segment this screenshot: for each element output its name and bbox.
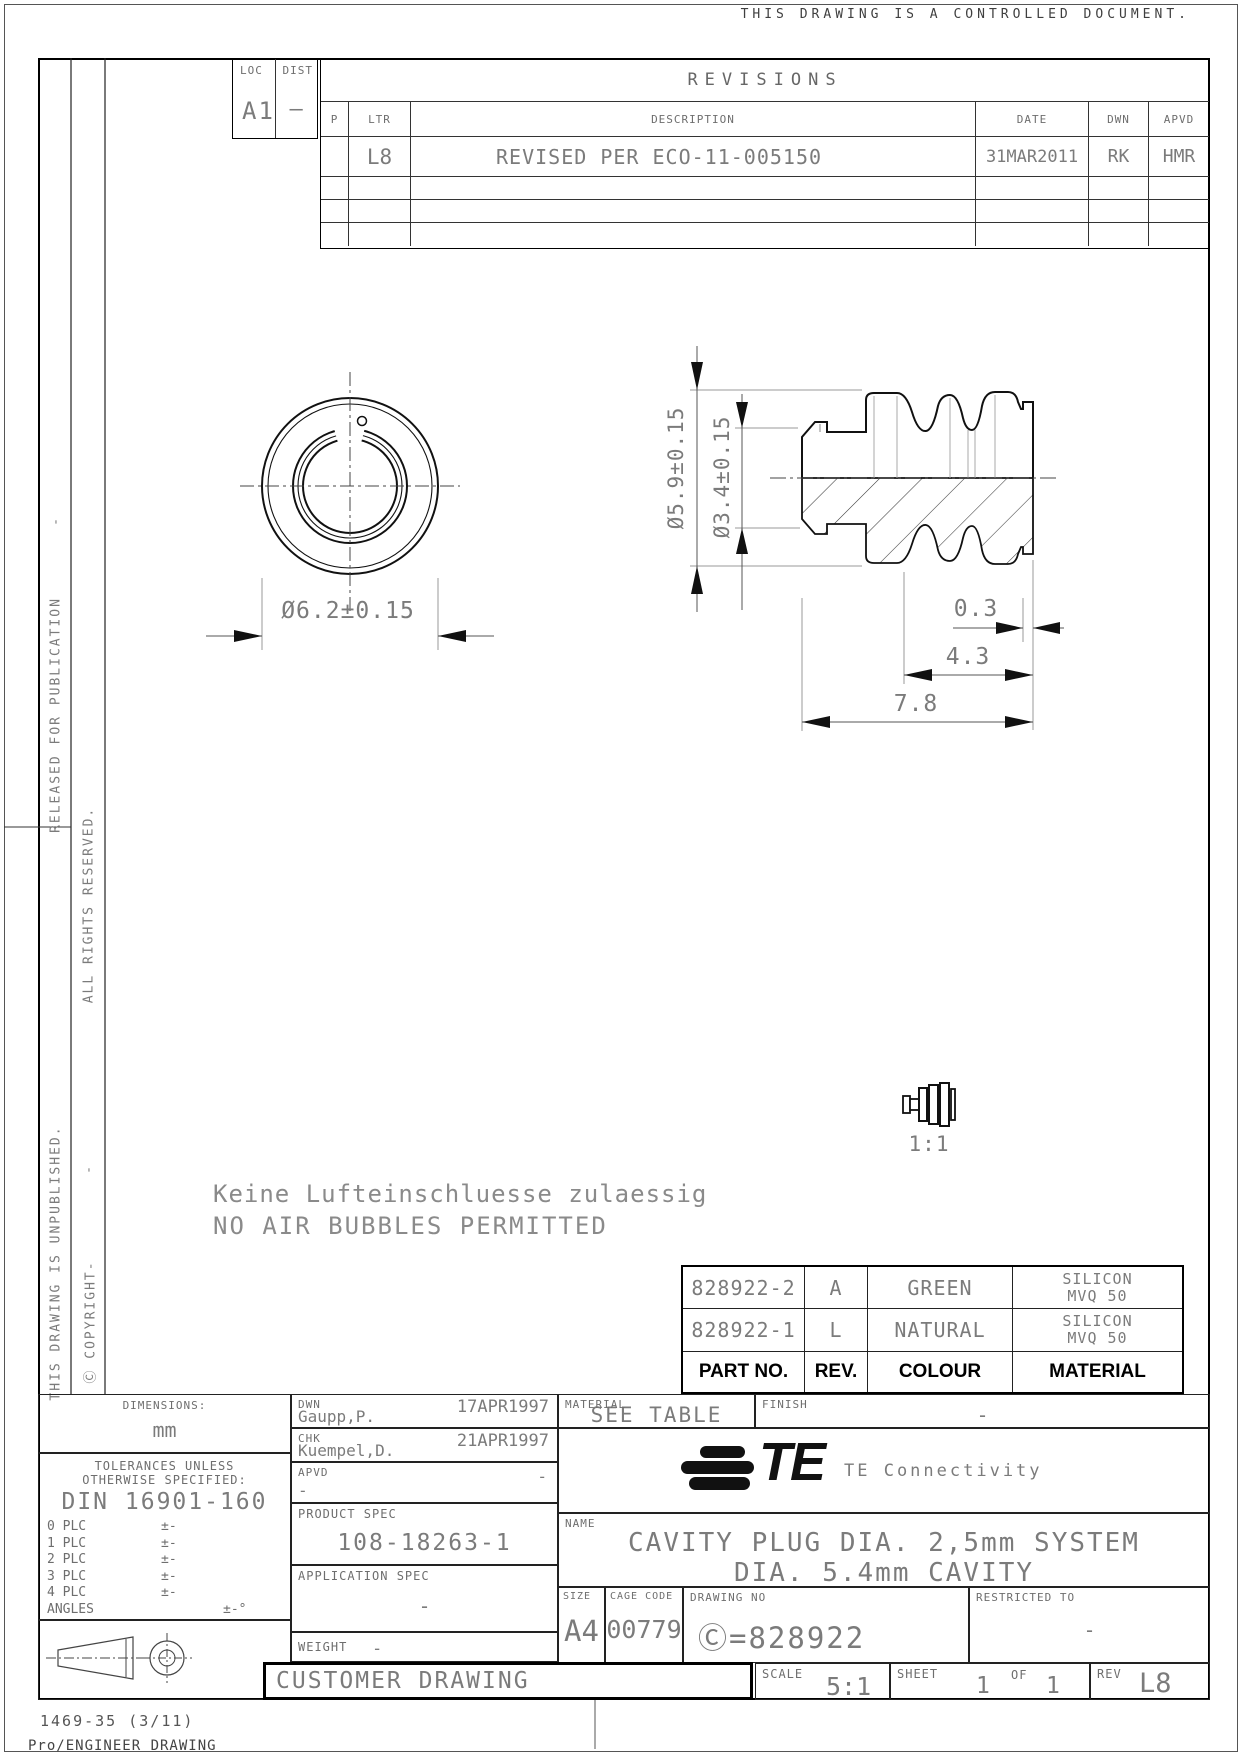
rev-header: REV. [805,1352,868,1392]
te-logo-wordmark: TE [759,1431,824,1493]
rev-col-date: DATE [976,102,1089,137]
controlled-document-note: THIS DRAWING IS A CONTROLLED DOCUMENT. [741,7,1190,22]
dwn-cell: DWN 17APR1997 Gaupp,P. [291,1394,558,1428]
scale-1-1-label: 1:1 [909,1132,950,1156]
dist-value: – [290,97,303,122]
size-label: SIZE [563,1591,591,1602]
released-for-publication-note: RELEASED FOR PUBLICATION [49,597,64,833]
colour-cell: GREEN [868,1267,1013,1309]
dist-cell: DIST – [276,59,318,138]
material-cell: MATERIAL SEE TABLE [558,1394,755,1428]
cage-code-value: 00779 [606,1615,682,1644]
apvd-label: APVD [298,1466,329,1479]
loc-label: LOC [240,64,263,77]
apvd-name: - [298,1481,308,1500]
drawing-title-line2: DIA. 5.4mm CAVITY [559,1558,1209,1588]
dim-side-outer-diameter: Ø5.9±0.15 [664,407,688,530]
weight-cell: WEIGHT - [291,1632,558,1662]
projection-symbol-cell [38,1620,291,1700]
dim-front-diameter: Ø6.2±0.15 [281,598,415,624]
part-table: 828922-2 A GREEN SILICON MVQ 50 828922-1… [681,1265,1184,1394]
application-spec-value: - [292,1594,557,1618]
material-label: MATERIAL [565,1398,626,1411]
released-dash: - [49,518,64,526]
part-no-cell: 828922-2 [683,1267,805,1309]
drawing-no-value: Ⓒ=828922 [698,1615,968,1657]
cage-code-label: CAGE CODE [610,1591,673,1602]
rev-cell: L [805,1309,868,1352]
dim-total-length: 7.8 [894,691,939,717]
footer-note: Pro/ENGINEER DRAWING [28,1738,217,1754]
rev-col-description: DESCRIPTION [411,102,976,137]
revisions-table: REVISIONS P LTR DESCRIPTION DATE DWN APV… [320,58,1210,249]
tolerances-standard: DIN 16901-160 [39,1489,290,1515]
rev-label: REV [1097,1667,1122,1681]
colour-header: COLOUR [868,1352,1013,1392]
dim-lip-width: 0.3 [954,596,999,622]
unpublished-note: THIS DRAWING IS UNPUBLISHED. [49,1125,64,1400]
application-spec-label: APPLICATION SPEC [298,1569,430,1583]
revision-row: L8 REVISED PER ECO-11-005150 31MAR2011 R… [321,137,1209,177]
plc-row: 4 PLC ±- [47,1585,290,1602]
rights-dash: - [82,1166,97,1174]
chk-name: Kuempel,D. [298,1441,394,1460]
product-spec-cell: PRODUCT SPEC 108-18263-1 [291,1503,558,1565]
rev-apvd: HMR [1149,137,1209,177]
form-number: 1469-35 (3/11) [40,1712,194,1730]
dwn-date: 17APR1997 [457,1397,549,1417]
chk-date: 21APR1997 [457,1431,549,1451]
finish-cell: FINISH - [755,1394,1210,1428]
dimensions-label: DIMENSIONS: [39,1395,290,1412]
rev-col-dwn: DWN [1089,102,1149,137]
restricted-to-value: - [970,1618,1209,1642]
rev-dwn: RK [1089,137,1149,177]
rev-value: L8 [1139,1668,1172,1699]
sheet-label: SHEET [897,1667,938,1681]
revision-empty-row [321,177,1209,200]
engineering-drawing-page: THIS DRAWING IS A CONTROLLED DOCUMENT. R… [0,0,1242,1756]
rev-cell: REV L8 [1090,1663,1210,1700]
application-spec-cell: APPLICATION SPEC - [291,1565,558,1632]
scale-cell: SCALE 5:1 [755,1663,890,1700]
plc-row: 3 PLC ±- [47,1569,290,1586]
part-no-cell: 828922-1 [683,1309,805,1352]
sheet-of-label: OF [1011,1668,1027,1682]
material-cell: SILICON MVQ 50 [1013,1267,1182,1309]
weight-value: - [372,1639,382,1659]
finish-label: FINISH [762,1398,808,1411]
sheet-cell: SHEET 1 OF 1 [890,1663,1090,1700]
apvd-date: - [537,1467,547,1486]
size-value: A4 [559,1614,604,1648]
note-german: Keine Lufteinschluesse zulaessig [213,1180,707,1208]
apvd-cell: APVD - - [291,1462,558,1503]
size-cell: SIZE A4 [558,1587,605,1663]
scale-value: 5:1 [826,1672,871,1701]
dim-side-inner-diameter: Ø3.4±0.15 [710,416,734,539]
finish-value: - [756,1403,1209,1427]
dimensions-cell: DIMENSIONS: mm [38,1394,291,1453]
cage-code-cell: CAGE CODE 00779 [605,1587,683,1663]
rev-p [321,137,349,177]
loc-value: A1 [242,97,275,125]
tolerances-cell: TOLERANCES UNLESS OTHERWISE SPECIFIED: D… [38,1453,291,1620]
revisions-header-row: P LTR DESCRIPTION DATE DWN APVD [321,102,1209,137]
note-english: NO AIR BUBBLES PERMITTED [213,1212,608,1240]
dimensions-value: mm [39,1418,290,1442]
scale-label: SCALE [762,1667,803,1681]
material-header: MATERIAL [1013,1352,1182,1392]
name-label: NAME [565,1517,596,1530]
plc-row: 1 PLC ±- [47,1536,290,1553]
product-spec-label: PRODUCT SPEC [298,1507,397,1521]
rev-date: 31MAR2011 [976,137,1089,177]
plc-row: 0 PLC ±- [47,1519,290,1536]
material-cell: SILICON MVQ 50 [1013,1309,1182,1352]
customer-drawing-label: CUSTOMER DRAWING [266,1668,530,1694]
plc-row: 2 PLC ±- [47,1552,290,1569]
sheet-value: 1 [976,1673,990,1699]
revision-empty-row [321,200,1209,223]
copyright-note: Ⓒ COPYRIGHT- [80,1260,99,1383]
rev-description: REVISED PER ECO-11-005150 [411,137,976,177]
sheet-total: 1 [1046,1673,1060,1699]
restricted-to-label: RESTRICTED TO [976,1591,1075,1604]
angles-row: ANGLES ±-° [47,1602,290,1619]
all-rights-reserved-note: ALL RIGHTS RESERVED. [82,807,97,1004]
brand-name: TE Connectivity [844,1461,1043,1481]
rev-ltr: L8 [349,137,411,177]
part-no-header: PART NO. [683,1352,805,1392]
rev-cell: A [805,1267,868,1309]
brand-cell: TE TE Connectivity [558,1428,1210,1513]
revision-empty-row [321,223,1209,246]
name-cell: NAME CAVITY PLUG DIA. 2,5mm SYSTEM DIA. … [558,1513,1210,1587]
dim-body-length: 4.3 [946,644,991,670]
loc-cell: LOC A1 [233,59,276,138]
tolerances-line1: TOLERANCES UNLESS [39,1454,290,1473]
loc-dist-box: LOC A1 DIST – [232,58,318,139]
revisions-title: REVISIONS [321,59,1209,102]
restricted-to-cell: RESTRICTED TO - [969,1587,1210,1663]
product-spec-value: 108-18263-1 [292,1530,557,1556]
dist-label: DIST [283,64,314,77]
colour-cell: NATURAL [868,1309,1013,1352]
rev-col-ltr: LTR [349,102,411,137]
rev-col-p: P [321,102,349,137]
tolerances-line2: OTHERWISE SPECIFIED: [39,1473,290,1487]
rev-col-apvd: APVD [1149,102,1209,137]
customer-drawing-box: CUSTOMER DRAWING [263,1662,753,1700]
drawing-no-cell: DRAWING NO Ⓒ=828922 [683,1587,969,1663]
chk-cell: CHK 21APR1997 Kuempel,D. [291,1428,558,1462]
drawing-no-label: DRAWING NO [690,1591,766,1604]
weight-label: WEIGHT [298,1640,347,1654]
drawing-title-line1: CAVITY PLUG DIA. 2,5mm SYSTEM [559,1528,1209,1558]
dwn-name: Gaupp,P. [298,1407,375,1426]
